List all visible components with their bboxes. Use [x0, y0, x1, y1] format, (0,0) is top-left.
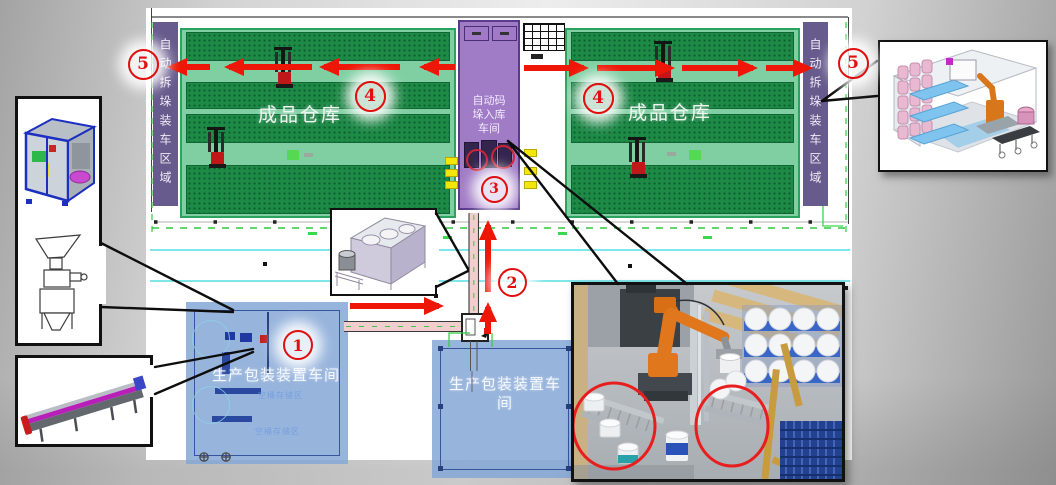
floor-mark: [304, 153, 313, 157]
palletizer-robot-icon: [481, 140, 497, 168]
workshop-2-label-line1: 生产包装装置车: [449, 373, 561, 394]
depalletizing-cell-3d-icon: [880, 42, 1044, 168]
floor-mark: [531, 54, 543, 59]
callout-gap: [99, 246, 106, 304]
palletizer-robot-icon: [498, 143, 512, 167]
callout-gap: [150, 365, 157, 397]
marker-2: 2: [498, 268, 527, 297]
floor-mark-yellow: [524, 167, 537, 175]
hopper-filler-drawing-icon: [28, 233, 92, 337]
zone-depalletizing-left: 自动拆垛装车区域: [153, 22, 178, 206]
packaging-machine-3d-icon: [18, 111, 99, 223]
rack-row: [186, 32, 450, 61]
pallet-grid-icon: [523, 23, 565, 51]
zone-depalletizing-right-label: 自动拆垛装车区域: [807, 38, 824, 190]
floor-mark: [689, 150, 701, 160]
floor-mark-yellow: [524, 181, 537, 189]
inset-tank-conveyor: [330, 208, 437, 296]
zone-depalletizing-right: 自动拆垛装车区域: [803, 22, 828, 206]
floor-mark-yellow: [524, 149, 537, 157]
slide: 自动拆垛装车区域 自动拆垛装车区域 成品仓库 成品仓库 自动码: [0, 0, 1056, 485]
inset-packaging-equipment: [15, 96, 102, 346]
rack-row: [571, 32, 794, 61]
marker-4-right: 4: [583, 83, 614, 114]
room: [464, 26, 489, 41]
storage-area-label: 空桶存储区: [255, 426, 300, 437]
palletizer-robot-icon: [464, 142, 479, 168]
belt-conveyor-3d-icon: [18, 358, 150, 444]
inset-depalletizing-cell: [878, 40, 1048, 172]
robot-arm-buckets-photo: [574, 285, 842, 479]
callout-gap: [433, 215, 439, 285]
marker-1: 1: [283, 330, 313, 360]
marker-4-left: 4: [355, 81, 386, 112]
palletizing-label-line3: 车间: [460, 120, 518, 136]
warehouse-right-label: 成品仓库: [628, 98, 712, 125]
forklift-icon: [272, 46, 294, 94]
inset-robot-photo: [571, 282, 845, 482]
tank-conveyor-3d-icon: [333, 210, 433, 292]
floor-mark-yellow: [445, 157, 458, 165]
floor-mark: [287, 150, 299, 160]
inset-belt-conveyor: [15, 355, 153, 447]
room: [492, 26, 517, 41]
zone-depalletizing-left-label: 自动拆垛装车区域: [157, 38, 174, 190]
forklift-icon: [626, 136, 648, 184]
floor-mark: [667, 152, 676, 156]
marker-5-right: 5: [838, 48, 869, 79]
floor-mark-yellow: [445, 181, 458, 189]
storage-area-label: 空桶存储区: [258, 390, 303, 401]
floor-mark-yellow: [445, 169, 458, 177]
workshop-2-label-line2: 间: [497, 392, 513, 413]
marker-3: 3: [481, 176, 508, 203]
forklift-icon: [652, 40, 674, 88]
marker-5-left: 5: [128, 49, 159, 80]
warehouse-left-label: 成品仓库: [258, 100, 342, 127]
forklift-icon: [205, 126, 227, 174]
workshop-1-label: 生产包装装置车间: [212, 364, 340, 385]
rack-row: [571, 165, 794, 214]
